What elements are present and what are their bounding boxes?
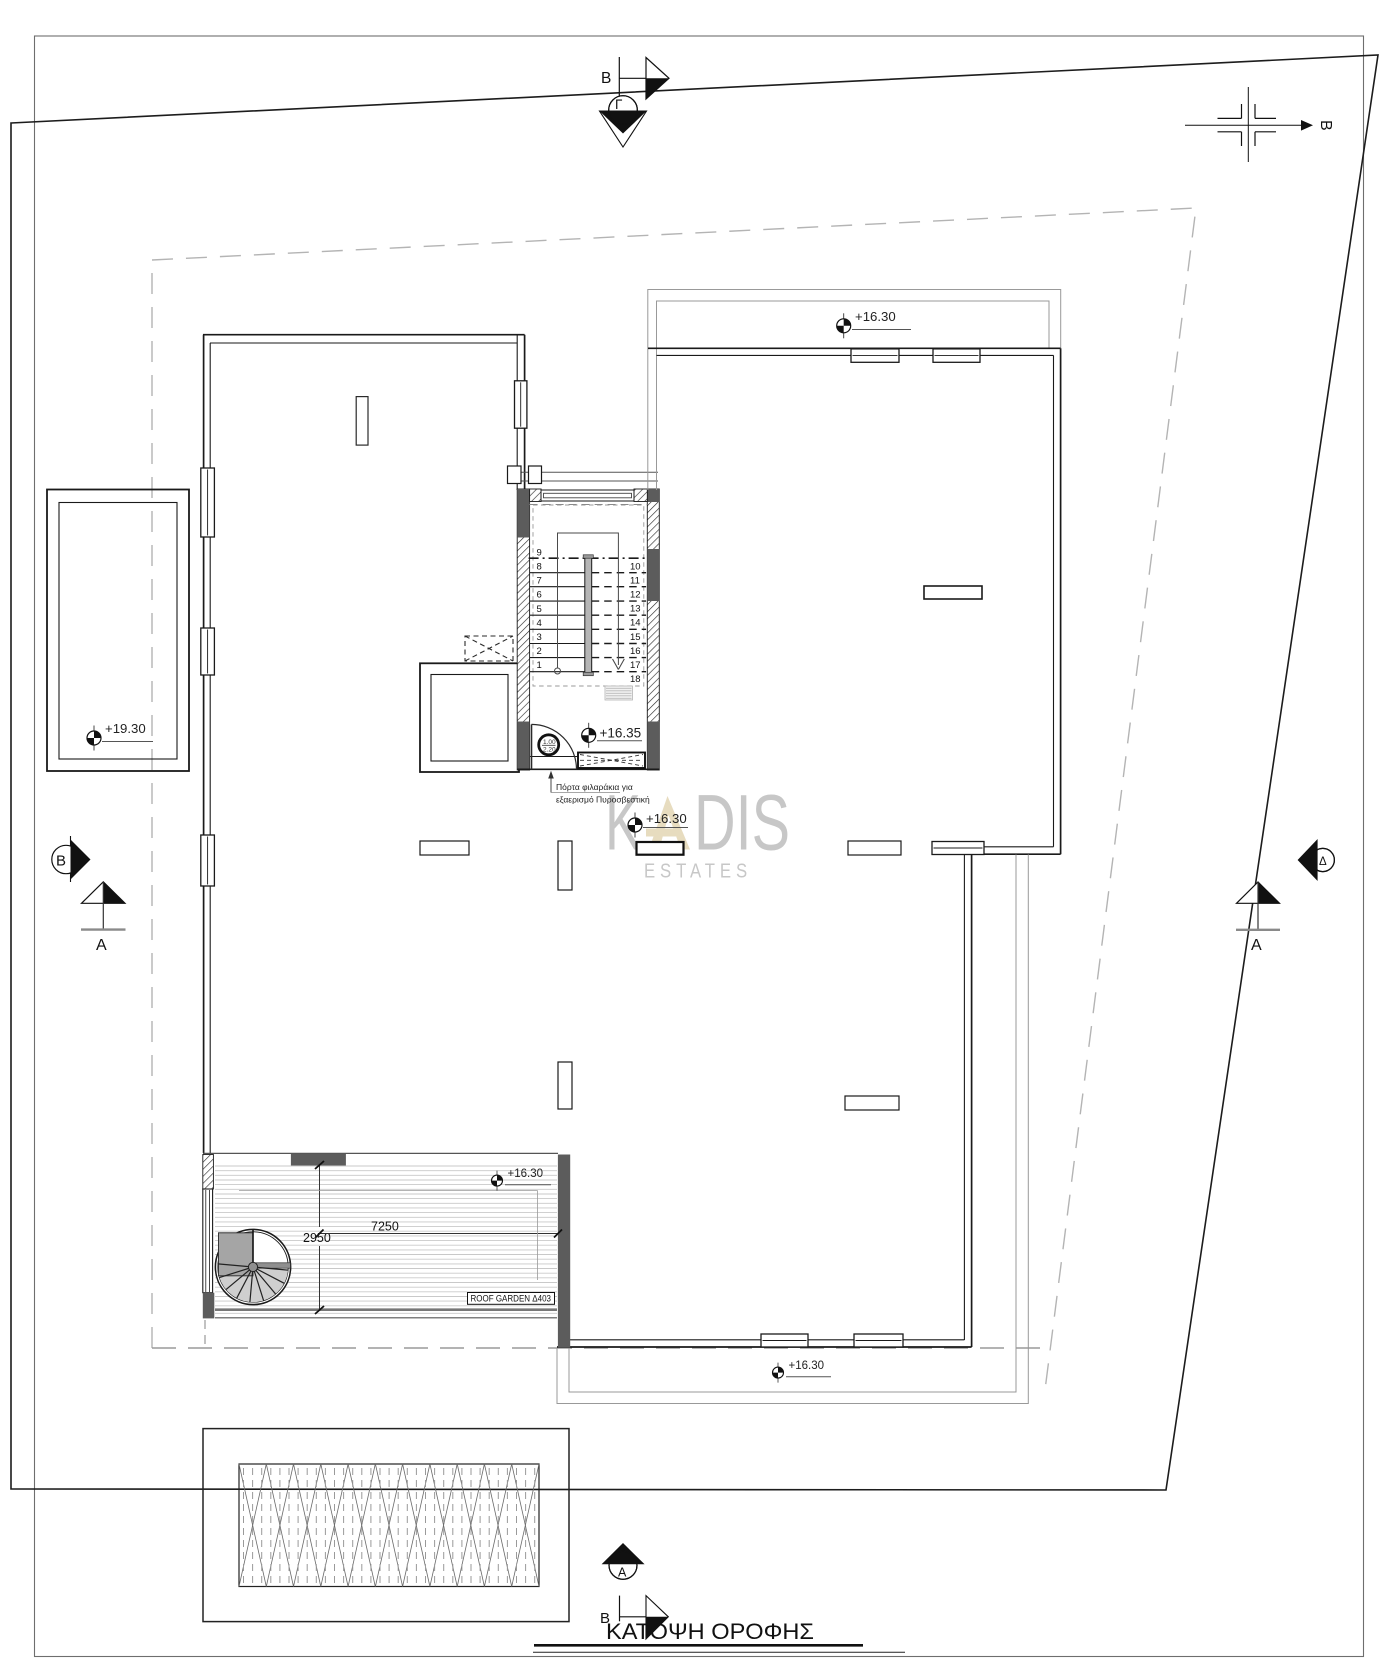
svg-text:B: B — [601, 70, 611, 87]
svg-text:6: 6 — [537, 590, 542, 601]
svg-text:+16.30: +16.30 — [789, 1360, 825, 1372]
svg-text:17: 17 — [630, 660, 641, 671]
svg-text:+16.30: +16.30 — [508, 1168, 544, 1180]
svg-text:2.20: 2.20 — [543, 747, 556, 754]
svg-text:ΚΑΤΟΨΗ ΟΡΟΦΗΣ: ΚΑΤΟΨΗ ΟΡΟΦΗΣ — [606, 1619, 814, 1644]
svg-text:Γ: Γ — [615, 97, 623, 112]
svg-text:+16.30: +16.30 — [855, 309, 896, 324]
svg-text:7: 7 — [537, 576, 542, 587]
svg-text:DIS: DIS — [694, 778, 790, 867]
svg-text:18: 18 — [630, 674, 641, 685]
svg-text:1: 1 — [537, 660, 542, 671]
svg-text:14: 14 — [630, 618, 641, 629]
svg-text:1.00: 1.00 — [543, 739, 556, 746]
svg-text:3: 3 — [537, 632, 542, 643]
svg-text:+16.30: +16.30 — [646, 811, 687, 826]
svg-text:7250: 7250 — [371, 1220, 399, 1234]
svg-text:10: 10 — [630, 561, 641, 572]
svg-text:16: 16 — [630, 646, 641, 657]
svg-text:15: 15 — [630, 632, 641, 643]
svg-text:B: B — [1317, 120, 1334, 131]
svg-text:13: 13 — [630, 604, 641, 615]
svg-text:8: 8 — [537, 562, 542, 573]
svg-text:εξαερισμό Πυροσβεστική: εξαερισμό Πυροσβεστική — [556, 795, 650, 805]
svg-text:+16.35: +16.35 — [600, 726, 642, 741]
svg-text:Πόρτα φιλαράκια για: Πόρτα φιλαράκια για — [556, 782, 633, 792]
svg-text:+19.30: +19.30 — [105, 721, 146, 736]
svg-text:11: 11 — [630, 575, 640, 586]
svg-text:A: A — [1251, 937, 1262, 954]
svg-text:A: A — [96, 937, 107, 954]
svg-text:ROOF GARDEN Δ403: ROOF GARDEN Δ403 — [471, 1294, 552, 1304]
svg-text:2: 2 — [537, 646, 542, 657]
svg-text:4: 4 — [537, 618, 542, 629]
svg-text:A: A — [618, 1566, 627, 1580]
svg-text:5: 5 — [537, 604, 542, 615]
svg-text:12: 12 — [630, 590, 641, 601]
svg-text:B: B — [56, 853, 66, 870]
svg-text:ESTATES: ESTATES — [644, 860, 752, 883]
svg-text:Δ: Δ — [1319, 856, 1327, 868]
svg-text:9: 9 — [537, 548, 542, 559]
